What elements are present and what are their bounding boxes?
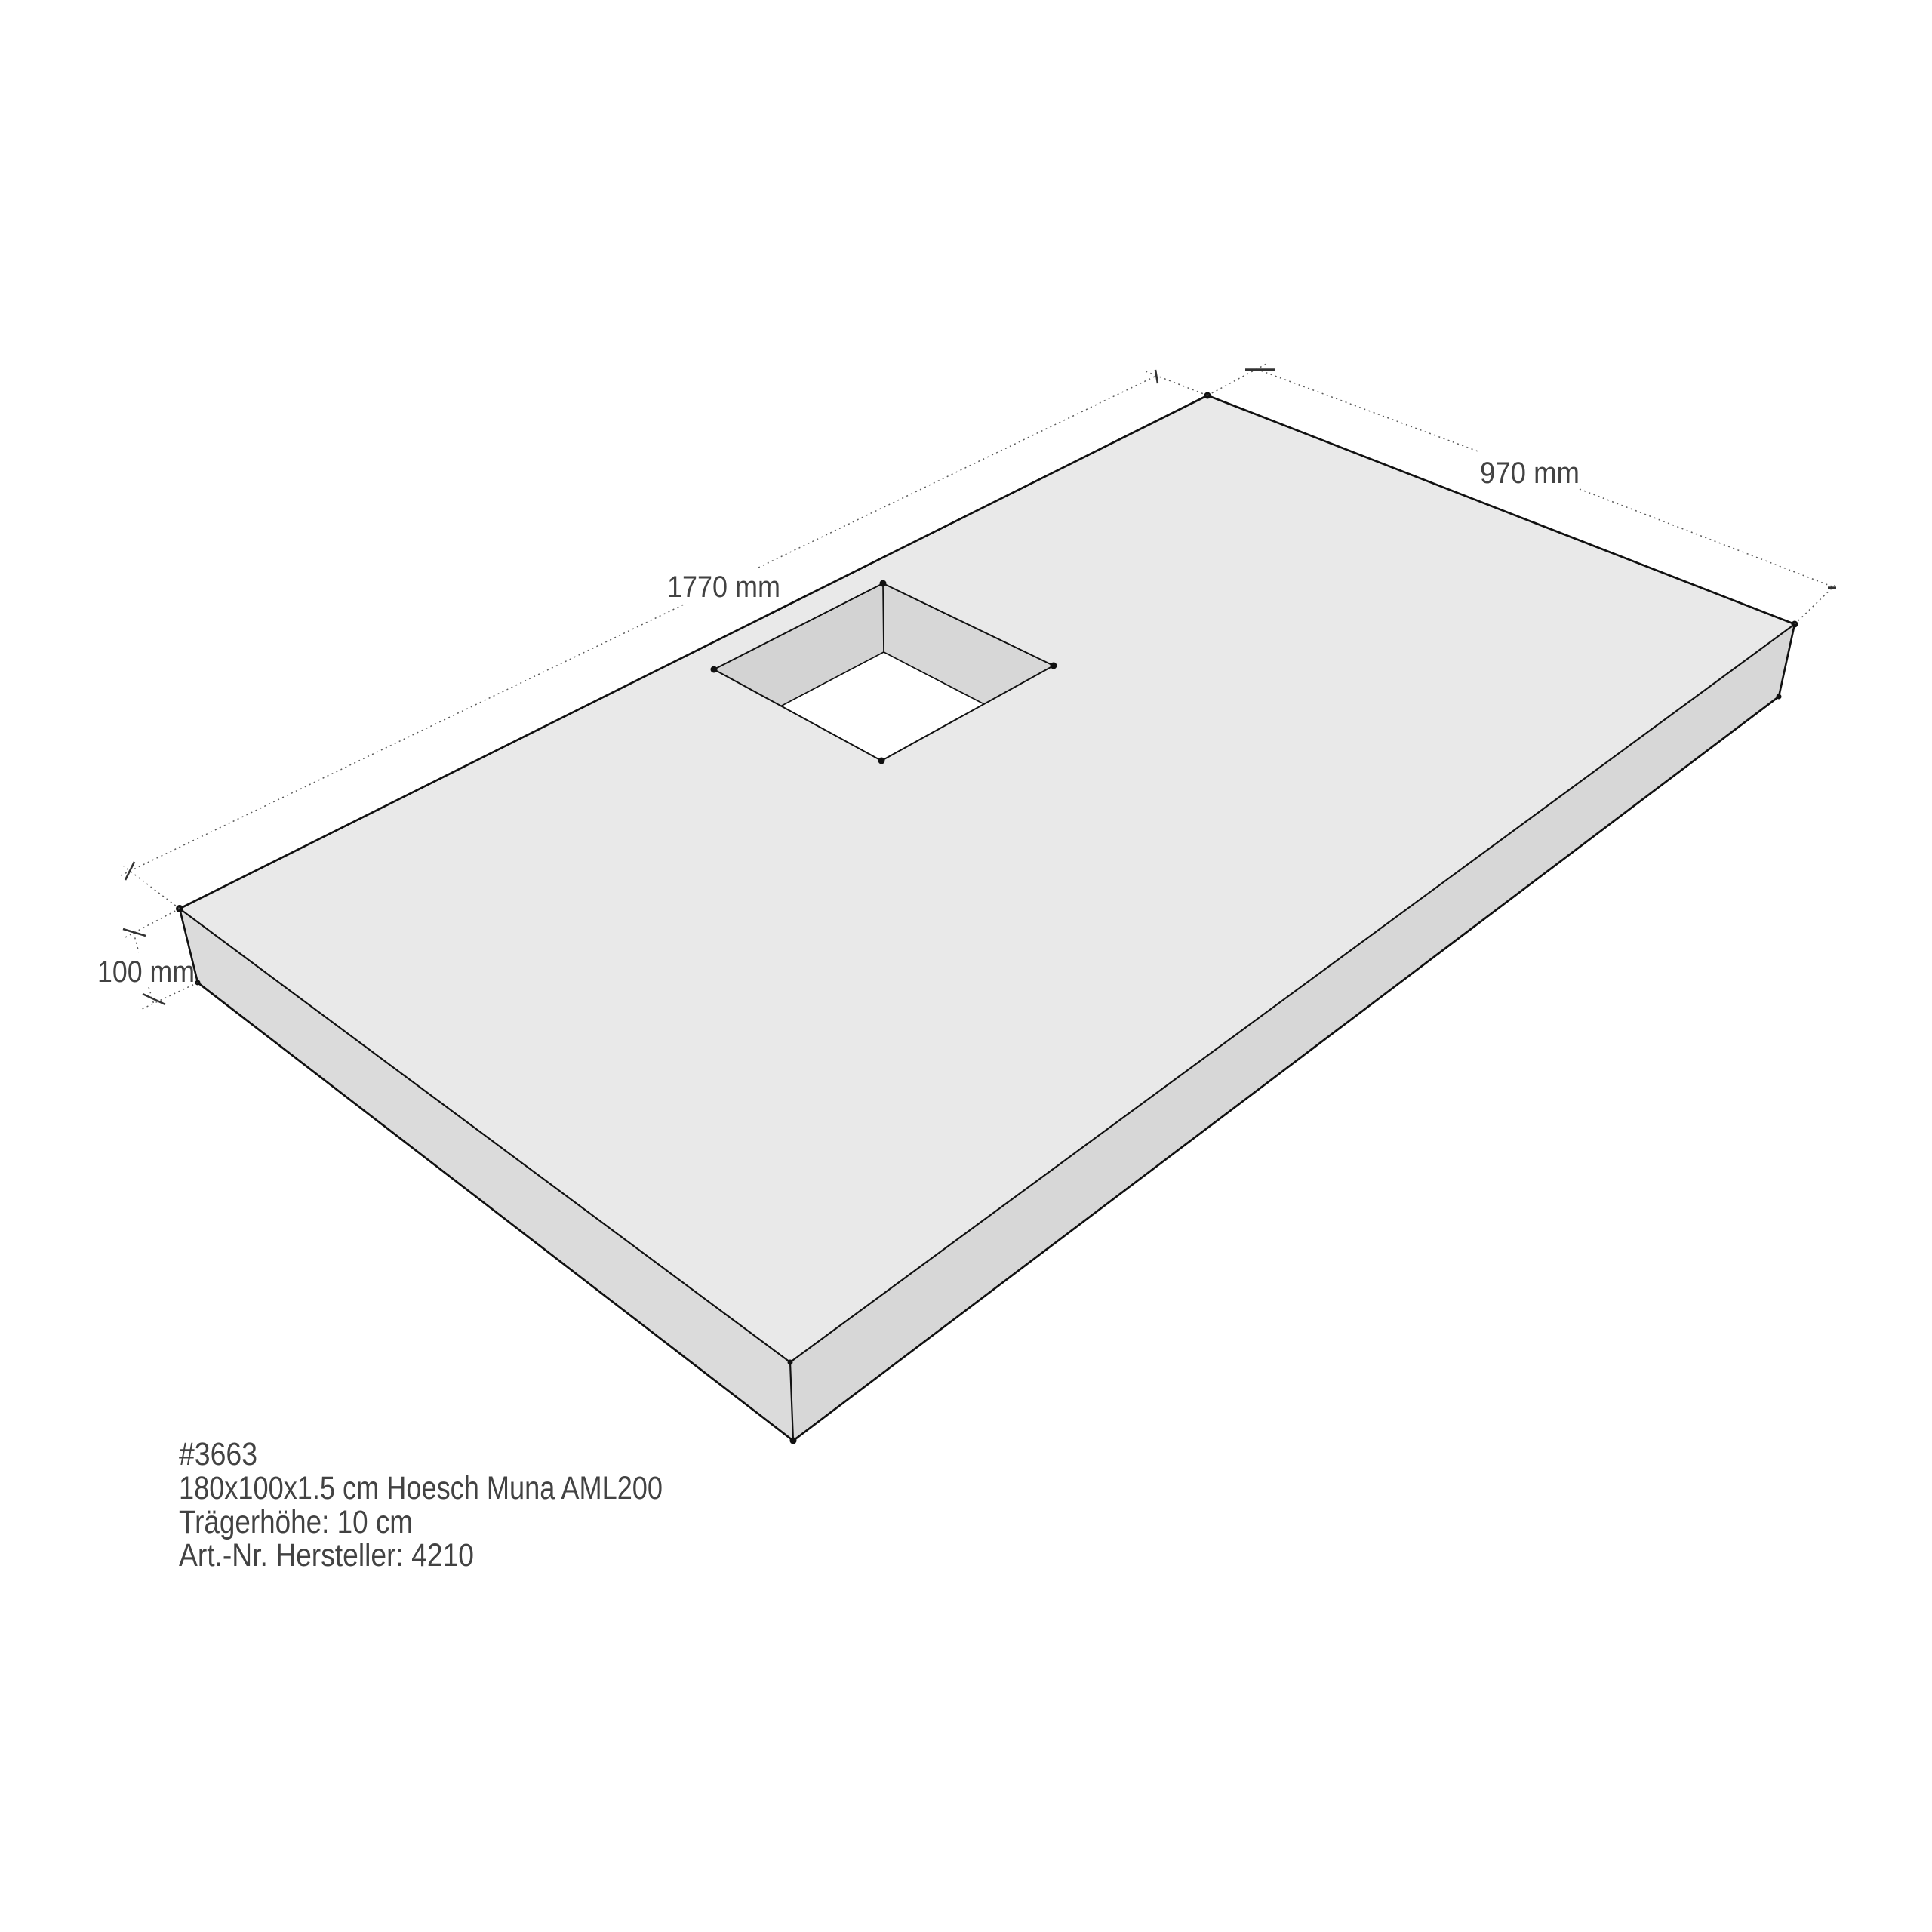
svg-text:Art.-Nr. Hersteller: 4210: Art.-Nr. Hersteller: 4210 [179,1537,474,1574]
svg-text:100 mm: 100 mm [97,955,195,989]
svg-text:180x100x1.5 cm Hoesch Muna AML: 180x100x1.5 cm Hoesch Muna AML200 [179,1470,663,1506]
svg-text:1770 mm: 1770 mm [667,571,780,604]
svg-text:#3663: #3663 [179,1436,257,1472]
svg-text:Trägerhöhe: 10 cm: Trägerhöhe: 10 cm [179,1504,413,1540]
svg-text:970 mm: 970 mm [1480,457,1580,490]
